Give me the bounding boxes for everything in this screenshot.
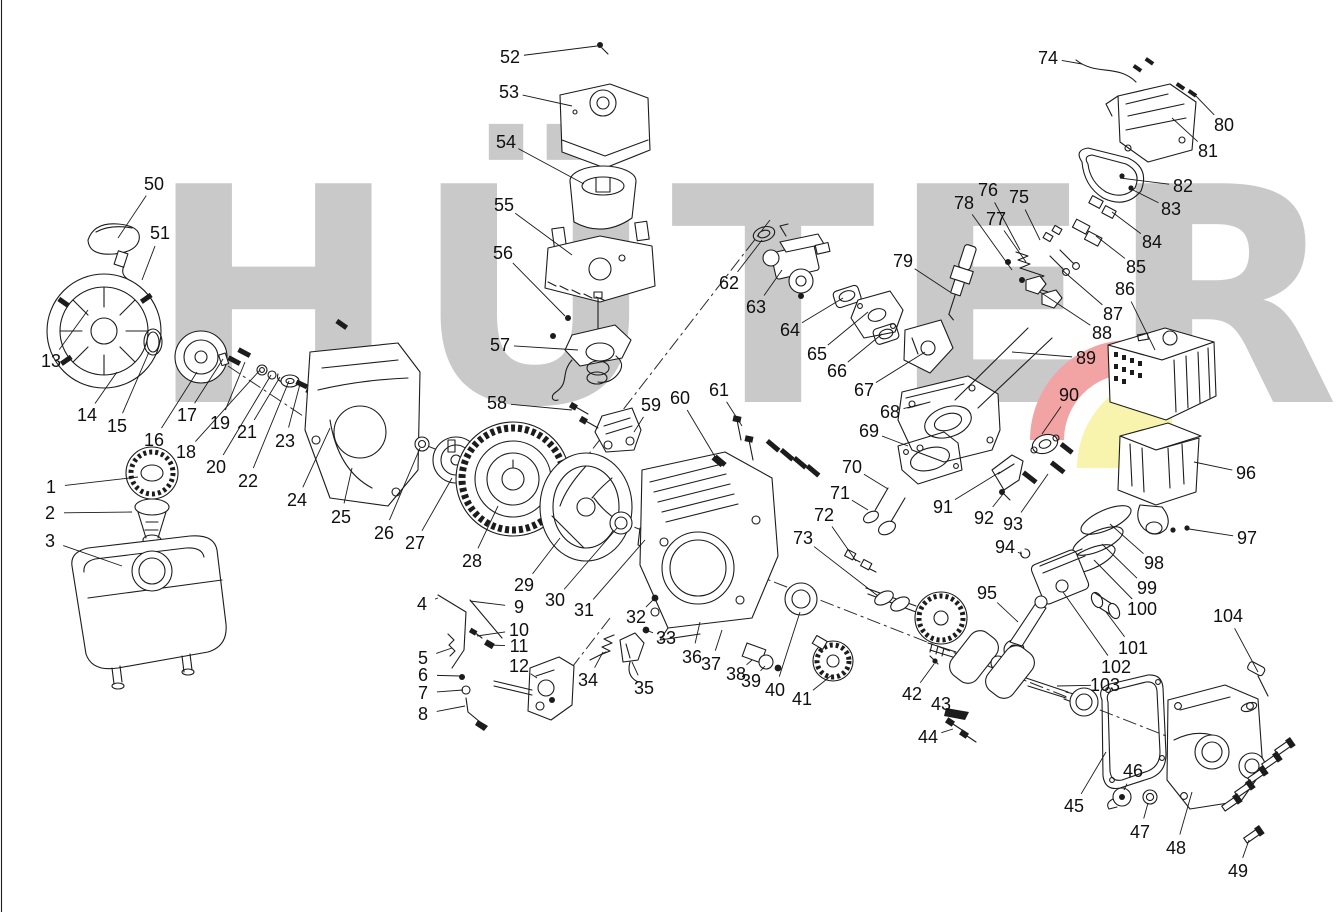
base-screws — [550, 315, 571, 339]
callout-104-leader — [1235, 628, 1258, 672]
callout-13-label: 13 — [41, 351, 61, 371]
fan-cover — [305, 319, 420, 506]
callout-19-label: 19 — [210, 413, 230, 433]
callout-11-label: 11 — [510, 636, 529, 656]
callout-38-leader — [747, 660, 752, 665]
callout-62-leader — [738, 240, 762, 272]
heat-shield-plate — [904, 320, 953, 373]
fuel-tank — [72, 536, 226, 689]
callout-18-label: 18 — [176, 442, 196, 462]
callout-31-label: 31 — [574, 600, 594, 620]
intake-insulator — [552, 292, 631, 400]
callout-21-label: 21 — [237, 422, 257, 442]
callout-34-label: 34 — [578, 670, 598, 690]
callout-70-label: 70 — [842, 457, 862, 477]
callout-95-leader — [997, 603, 1018, 622]
choke-rod-parts — [448, 634, 488, 731]
callout-44-label: 44 — [918, 727, 938, 747]
callout-83-label: 83 — [1161, 199, 1181, 219]
oil-drain-plug — [1108, 788, 1131, 809]
callout-95-label: 95 — [977, 583, 997, 603]
callout-77-leader — [1004, 230, 1026, 262]
callout-103-label: 103 — [1090, 675, 1120, 695]
callout-49-label: 49 — [1228, 861, 1248, 881]
callout-24-label: 24 — [287, 490, 307, 510]
callout-47-leader — [1144, 803, 1148, 819]
intake-spacer — [851, 291, 903, 338]
valve-cover-gasket — [1079, 148, 1144, 202]
cam-bearing — [785, 583, 817, 615]
engine-exploded-parts-diagram: HÜTER — [0, 0, 1339, 912]
callout-91-leader — [955, 472, 1000, 500]
callout-64-label: 64 — [780, 320, 800, 340]
cylinder-head — [898, 376, 1000, 462]
callout-20-label: 20 — [206, 457, 226, 477]
callout-62-label: 62 — [719, 273, 739, 293]
callout-100-label: 100 — [1127, 599, 1157, 619]
callout-65-label: 65 — [807, 344, 827, 364]
callout-5-leader — [436, 648, 452, 653]
callout-74-label: 74 — [1038, 48, 1058, 68]
callout-40-label: 40 — [765, 680, 785, 700]
callout-61-leader — [727, 402, 742, 426]
front-bearing — [610, 512, 632, 534]
callout-78-label: 78 — [954, 193, 974, 213]
callout-72-label: 72 — [814, 505, 834, 525]
callout-80-leader — [1194, 94, 1214, 115]
callout-35-label: 35 — [634, 678, 654, 698]
callout-22-label: 22 — [238, 471, 258, 491]
callout-10-leader — [477, 632, 505, 636]
callout-98-label: 98 — [1144, 553, 1164, 573]
callout-33-label: 33 — [656, 628, 676, 648]
callout-92-label: 92 — [974, 508, 994, 528]
callout-87-leader — [1062, 270, 1102, 305]
cylinder-crankcase — [640, 452, 778, 640]
callout-82-leader — [1120, 178, 1169, 184]
callout-6-label: 6 — [418, 665, 428, 685]
callout-23-leader — [289, 384, 300, 427]
callout-58-leader — [511, 404, 572, 410]
callout-66-label: 66 — [827, 361, 847, 381]
callout-59-label: 59 — [641, 395, 661, 415]
callout-9-leader — [470, 601, 505, 605]
rocker-arms-and-pivots — [1026, 250, 1079, 308]
governor-gear — [812, 636, 853, 681]
callout-70-leader — [864, 474, 888, 489]
callout-6-leader — [437, 675, 460, 676]
recoil-starter-handle — [88, 224, 139, 267]
callout-102-label: 102 — [1101, 657, 1131, 677]
stay-bolt — [999, 489, 1010, 500]
callout-11-leader — [489, 645, 505, 646]
callout-92-leader — [993, 494, 1003, 507]
callout-48-label: 48 — [1166, 838, 1186, 858]
callout-12-label: 12 — [509, 656, 529, 676]
callout-2-label: 2 — [45, 503, 55, 523]
callout-79-label: 79 — [893, 251, 913, 271]
callout-47-label: 47 — [1130, 822, 1150, 842]
callout-9-label: 9 — [514, 597, 524, 617]
callout-84-leader — [1112, 212, 1141, 234]
callout-93-label: 93 — [1003, 514, 1023, 534]
callout-75-leader — [1025, 210, 1040, 240]
muffler-protector — [1118, 423, 1201, 534]
callout-51-label: 51 — [150, 223, 170, 243]
callout-77-label: 77 — [986, 209, 1006, 229]
piston-pin — [1089, 591, 1122, 621]
callout-81-label: 81 — [1198, 141, 1218, 161]
callout-69-label: 69 — [859, 421, 879, 441]
callout-32-leader — [646, 598, 655, 607]
callout-54-label: 54 — [496, 132, 516, 152]
callout-42-label: 42 — [902, 684, 922, 704]
callout-97-leader — [1189, 529, 1233, 536]
valve-retainers — [845, 549, 876, 572]
callout-72-leader — [832, 526, 856, 561]
callout-73-label: 73 — [793, 528, 813, 548]
filter-cover-screw — [597, 42, 608, 54]
callout-15-label: 15 — [107, 416, 127, 436]
callout-7-leader — [437, 690, 463, 692]
callout-68-label: 68 — [880, 402, 900, 422]
callout-96-leader — [1194, 462, 1232, 470]
callout-103-leader — [1057, 685, 1091, 686]
diagram-canvas: 1234567891011121314151617181920212223242… — [0, 0, 1339, 912]
callout-3-label: 3 — [45, 531, 55, 551]
callout-94-label: 94 — [995, 537, 1015, 557]
callout-29-leader — [533, 538, 560, 574]
throttle-arm — [620, 633, 644, 682]
callout-43-label: 43 — [931, 694, 951, 714]
callout-22-leader — [253, 381, 289, 468]
callout-61-label: 61 — [709, 380, 729, 400]
callout-45-leader — [1081, 752, 1106, 794]
callout-52-label: 52 — [500, 47, 520, 67]
callout-69-leader — [882, 436, 908, 446]
breather-tube — [1076, 60, 1136, 82]
callout-83-leader — [1133, 190, 1158, 203]
callout-50-label: 50 — [144, 174, 164, 194]
callout-29-label: 29 — [514, 575, 534, 595]
callout-91-label: 91 — [933, 497, 953, 517]
callout-4-leader — [435, 598, 438, 599]
muffler — [1108, 328, 1216, 420]
callout-44-leader — [941, 729, 953, 733]
valve-cover — [1106, 84, 1196, 162]
callout-37-label: 37 — [701, 654, 721, 674]
callout-97-label: 97 — [1237, 528, 1257, 548]
callout-52-leader — [524, 46, 597, 55]
callout-58-label: 58 — [487, 393, 507, 413]
bolt-42 — [930, 656, 938, 664]
callout-96-label: 96 — [1236, 463, 1256, 483]
callout-25-label: 25 — [331, 507, 351, 527]
callout-17-label: 17 — [177, 405, 197, 425]
carburetor-gasket-62 — [751, 224, 776, 244]
callout-64-leader — [802, 298, 843, 323]
cooling-fan — [540, 453, 632, 561]
callout-63-label: 63 — [746, 297, 766, 317]
callout-14-label: 14 — [77, 405, 97, 425]
air-filter-element — [570, 166, 636, 229]
callout-71-label: 71 — [830, 483, 850, 503]
callout-26-label: 26 — [374, 523, 394, 543]
callout-7-label: 7 — [418, 683, 428, 703]
callout-53-label: 53 — [499, 82, 519, 102]
callout-60-label: 60 — [670, 388, 690, 408]
callout-8-label: 8 — [418, 704, 428, 724]
callout-71-leader — [852, 500, 868, 510]
callout-89-leader — [1012, 352, 1072, 357]
callout-39-label: 39 — [741, 671, 761, 691]
callout-36-label: 36 — [682, 647, 702, 667]
callout-51-leader — [142, 246, 155, 280]
callout-35-leader — [632, 662, 638, 675]
callout-30-label: 30 — [545, 590, 565, 610]
callout-75-label: 75 — [1009, 187, 1029, 207]
callout-19-leader — [225, 362, 245, 410]
camshaft — [866, 588, 967, 644]
callout-8-leader — [437, 706, 465, 711]
callout-88-label: 88 — [1092, 323, 1112, 343]
flywheel-nut — [415, 437, 429, 451]
ignition-coil — [595, 408, 641, 452]
coil-bolts — [569, 402, 598, 428]
callout-32-label: 32 — [626, 607, 646, 627]
callout-101-label: 101 — [1118, 638, 1148, 658]
exhaust-stay — [992, 455, 1023, 490]
callout-67-label: 67 — [854, 380, 874, 400]
spark-plug — [938, 243, 981, 321]
callout-85-leader — [1096, 236, 1125, 258]
callout-87-label: 87 — [1103, 304, 1123, 324]
callout-27-leader — [422, 478, 452, 531]
callout-80-label: 80 — [1214, 115, 1234, 135]
callout-46-label: 46 — [1123, 761, 1143, 781]
callout-42-leader — [920, 664, 934, 683]
fuel-strainer — [135, 499, 169, 545]
callout-57-label: 57 — [490, 335, 510, 355]
callout-23-label: 23 — [275, 431, 295, 451]
oil-sensor — [742, 643, 781, 671]
callout-89-label: 89 — [1076, 348, 1096, 368]
protector-bolts — [1170, 525, 1189, 532]
callout-49-leader — [1243, 840, 1249, 858]
callout-16-label: 16 — [144, 430, 164, 450]
callout-56-label: 56 — [493, 243, 513, 263]
callout-60-leader — [687, 410, 717, 460]
callouts-layer: 1234567891011121314151617181920212223242… — [41, 46, 1258, 881]
callout-86-label: 86 — [1115, 279, 1135, 299]
callout-41-label: 41 — [792, 689, 812, 709]
callout-28-label: 28 — [462, 551, 482, 571]
recoil-starter-assembly — [47, 274, 161, 388]
pin-clip — [1021, 549, 1030, 558]
callout-100-leader — [1094, 560, 1132, 599]
callout-2-leader — [64, 512, 132, 513]
callout-82-label: 82 — [1173, 176, 1193, 196]
callout-27-label: 27 — [405, 533, 425, 553]
callout-104-label: 104 — [1213, 606, 1243, 626]
callout-84-label: 84 — [1142, 232, 1162, 252]
valves — [862, 488, 905, 538]
callout-34-leader — [595, 652, 603, 668]
callout-76-label: 76 — [978, 180, 998, 200]
callout-90-label: 90 — [1059, 385, 1079, 405]
small-parts-83-85 — [1072, 173, 1133, 246]
fuel-tank-cap — [126, 447, 178, 499]
callout-45-label: 45 — [1064, 796, 1084, 816]
air-filter-cover — [560, 84, 650, 168]
callout-1-label: 1 — [46, 477, 56, 497]
control-bracket — [494, 657, 574, 720]
rod-bolts — [469, 628, 495, 649]
callout-79-leader — [915, 269, 950, 292]
callout-40-leader — [779, 612, 800, 677]
callout-88-leader — [1040, 292, 1090, 325]
callout-37-leader — [715, 630, 722, 651]
callout-99-label: 99 — [1137, 578, 1157, 598]
callout-55-label: 55 — [494, 195, 514, 215]
callout-63-leader — [764, 270, 782, 296]
callout-85-label: 85 — [1126, 257, 1146, 277]
air-filter-base — [545, 221, 655, 302]
sealing-washer — [1143, 790, 1157, 804]
callout-4-label: 4 — [417, 594, 427, 614]
